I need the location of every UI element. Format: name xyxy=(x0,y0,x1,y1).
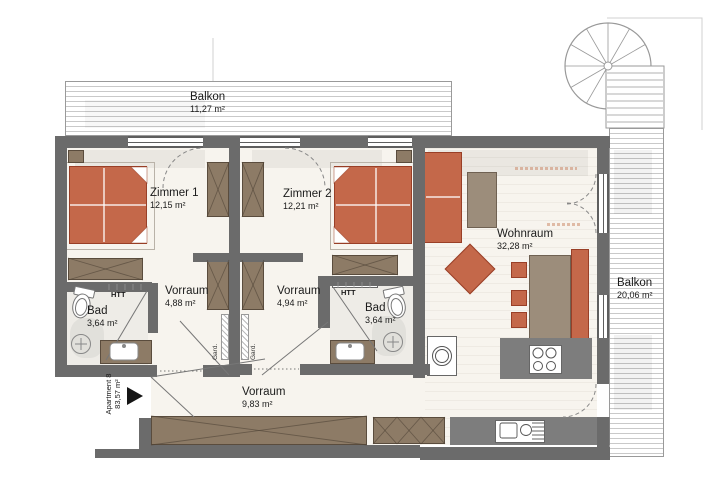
room-area: 9,83 m² xyxy=(242,399,285,409)
room-label-zimmer-1: Zimmer 1 12,15 m² xyxy=(150,187,199,210)
wardrobe-zimmer-1 xyxy=(207,162,229,217)
wall-right xyxy=(597,417,609,460)
bed-zimmer-1 xyxy=(69,166,147,244)
nightstand-zimmer-2 xyxy=(396,150,412,163)
room-name: Vorraum xyxy=(242,386,285,399)
floor-plan: Balkon 11,27 m² Zimmer 1 12,15 m² Zimmer… xyxy=(0,0,720,490)
garderobe-rail-left xyxy=(221,314,229,360)
room-label-balkon-right: Balkon 20,06 m² xyxy=(617,277,653,300)
room-label-vorraum-mid: Vorraum 4,94 m² xyxy=(277,285,320,308)
garderobe-label-left: Gard. xyxy=(212,320,219,360)
spiral-staircase-icon xyxy=(565,23,664,128)
wall-left xyxy=(55,136,67,377)
room-label-balkon-top: Balkon 11,27 m² xyxy=(190,91,225,114)
wall-bad-left-divider xyxy=(148,283,158,333)
wardrobe-hall xyxy=(151,416,367,445)
room-name: Balkon xyxy=(617,277,653,290)
room-name: Bad xyxy=(87,305,118,318)
kitchen-sink xyxy=(495,420,545,443)
dining-chair xyxy=(511,262,527,278)
room-name: Wohnraum xyxy=(497,228,553,241)
room-area: 11,27 m² xyxy=(190,104,225,114)
htt-label-left: HTT xyxy=(111,291,126,299)
wall-wohnraum-vertical xyxy=(413,148,425,378)
faint-annotation xyxy=(515,167,577,170)
room-area: 3,64 m² xyxy=(365,315,396,325)
wall-right xyxy=(597,233,609,295)
wall-right xyxy=(597,338,609,384)
room-area: 12,21 m² xyxy=(283,201,332,211)
room-area: 4,94 m² xyxy=(277,298,320,308)
bed-zimmer-2 xyxy=(334,166,412,244)
faint-annotation xyxy=(547,223,581,226)
window-zimmer-1 xyxy=(128,136,203,148)
dining-chair xyxy=(511,312,527,328)
room-label-bad-right: Bad 3,64 m² xyxy=(365,302,396,325)
washing-machine xyxy=(427,336,457,376)
entrance-arrow-icon xyxy=(127,387,143,405)
room-name: Bad xyxy=(365,302,396,315)
room-name: Balkon xyxy=(190,91,225,104)
wall-vorraum-mid-bottom xyxy=(240,364,252,375)
room-area: 3,64 m² xyxy=(87,318,118,328)
wardrobe-kitchen xyxy=(373,417,445,444)
room-name: Vorraum xyxy=(165,285,208,298)
dresser-zimmer-1 xyxy=(68,258,143,280)
dining-bench xyxy=(571,249,589,341)
room-name: Vorraum xyxy=(277,285,320,298)
garderobe-label-right: Gard. xyxy=(250,320,257,360)
htt-label-right: HTT xyxy=(341,289,356,297)
wall-bottom xyxy=(139,445,420,458)
nightstand-zimmer-1 xyxy=(68,150,84,163)
room-label-zimmer-2: Zimmer 2 12,21 m² xyxy=(283,188,332,211)
wall-top xyxy=(300,136,368,148)
room-name: Zimmer 2 xyxy=(283,188,332,201)
wall-top xyxy=(412,136,610,148)
window-wohnraum-2 xyxy=(597,295,609,338)
apartment-label: Apartment 8 83,57 m² xyxy=(104,354,124,434)
wall-vorraum-left-bottom xyxy=(203,365,240,377)
dining-table xyxy=(529,255,571,343)
room-area: 20,06 m² xyxy=(617,290,653,300)
window-zimmer-2b xyxy=(368,136,412,148)
dresser-zimmer-2 xyxy=(332,255,398,275)
wardrobe-vorraum-left xyxy=(207,260,229,310)
garderobe-rail-right xyxy=(241,314,249,360)
sofa xyxy=(424,152,462,243)
shadow xyxy=(85,100,205,128)
wardrobe-vorraum-mid xyxy=(242,260,264,310)
room-area: 4,88 m² xyxy=(165,298,208,308)
wall-bad-right-top xyxy=(330,276,415,286)
room-label-bad-left: Bad 3,64 m² xyxy=(87,305,118,328)
wall-bottom-notch xyxy=(95,449,140,458)
wall-vorraum-left-top xyxy=(193,253,240,262)
room-name: Zimmer 1 xyxy=(150,187,199,200)
room-label-wohnraum: Wohnraum 32,28 m² xyxy=(497,228,553,251)
wall-bad-right-bottom xyxy=(300,364,430,375)
room-label-vorraum-bottom: Vorraum 9,83 m² xyxy=(242,386,285,409)
room-area: 32,28 m² xyxy=(497,241,553,251)
wall-bad-left-top xyxy=(55,282,152,292)
wall-top xyxy=(203,136,240,148)
cooktop xyxy=(529,345,562,374)
room-label-vorraum-left: Vorraum 4,88 m² xyxy=(165,285,208,308)
coffee-table xyxy=(467,172,497,228)
vanity-bad-right xyxy=(330,340,375,364)
window-wohnraum-1 xyxy=(597,174,609,233)
room-area: 12,15 m² xyxy=(150,200,199,210)
shadow xyxy=(614,335,652,410)
wall-right xyxy=(597,136,609,174)
apartment-area: 83,57 m² xyxy=(113,354,122,434)
wall-bottom-kitchen xyxy=(420,447,610,460)
wall-entry xyxy=(139,418,151,445)
window-zimmer-2 xyxy=(240,136,300,148)
apartment-name: Apartment 8 xyxy=(104,354,113,434)
wardrobe-zimmer-2 xyxy=(242,162,264,217)
shadow xyxy=(614,150,652,214)
wall-vorraum-mid-top xyxy=(240,253,303,262)
dining-chair xyxy=(511,290,527,306)
